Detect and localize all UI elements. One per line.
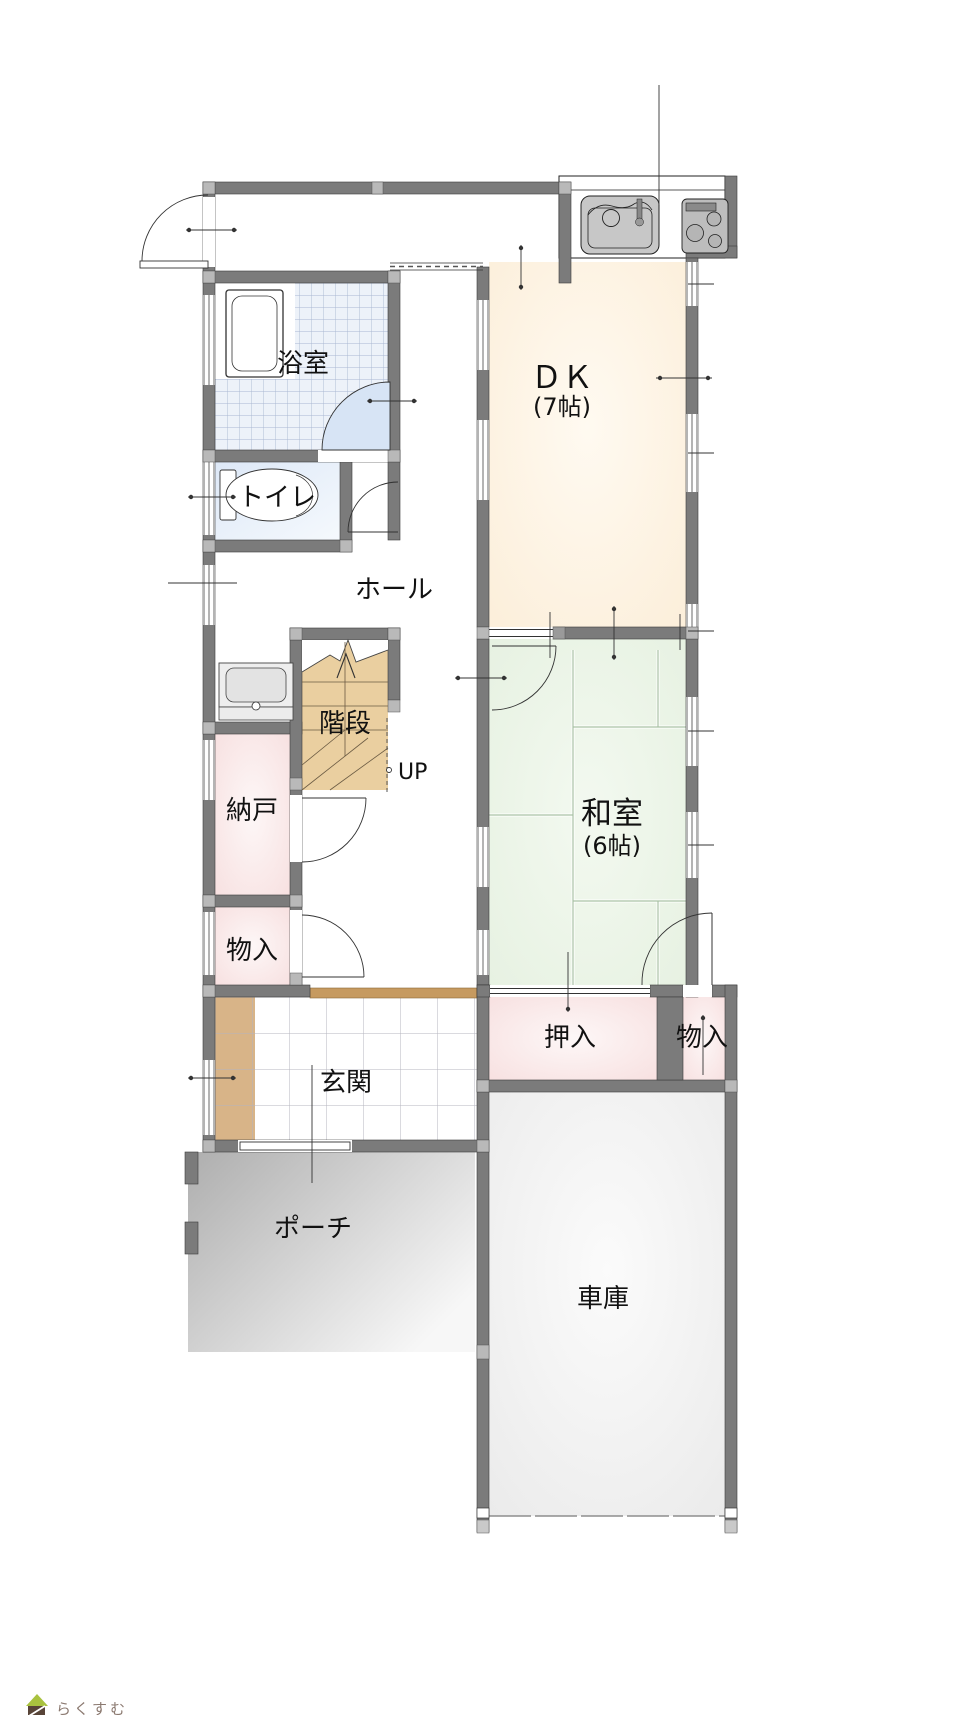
stairs-up-label: UP bbox=[398, 760, 427, 785]
room-label-washitsu: 和室 bbox=[581, 796, 643, 832]
bathtub-icon bbox=[226, 290, 283, 377]
room-label-garage: 車庫 bbox=[577, 1284, 629, 1314]
logo-text: らくすむ bbox=[56, 1700, 128, 1715]
room-label-entrance: 玄関 bbox=[320, 1068, 372, 1098]
room-label-toilet: トイレ bbox=[238, 483, 316, 513]
room-label-futon-closet: 押入 bbox=[544, 1023, 596, 1053]
logo-house-icon bbox=[26, 1694, 48, 1715]
floor-plan-page: 浴室 トイレ ホール 階段 UP 納戸 物入 玄関 ポーチ ＤＫ (7帖) 和室… bbox=[0, 0, 956, 1715]
washbasin-icon bbox=[219, 663, 293, 720]
room-label-garage-closet: 物入 bbox=[676, 1023, 728, 1053]
room-label-hall: ホール bbox=[355, 575, 433, 605]
hall-closet-door-swing bbox=[302, 915, 364, 977]
entrance-step-edge bbox=[310, 988, 477, 998]
room-porch bbox=[188, 1152, 475, 1352]
storage-door-swing bbox=[302, 798, 366, 862]
back-door-swing bbox=[140, 195, 208, 268]
floor-plan: 浴室 トイレ ホール 階段 UP 納戸 物入 玄関 ポーチ ＤＫ (7帖) 和室… bbox=[0, 0, 956, 1715]
rakusumu-logo: らくすむ bbox=[26, 1694, 128, 1715]
room-entrance bbox=[215, 988, 477, 1140]
kitchen-sink-icon bbox=[581, 196, 659, 254]
room-dining-kitchen bbox=[489, 262, 686, 627]
entrance-door bbox=[240, 1142, 350, 1150]
room-size-washitsu: (6帖) bbox=[583, 832, 641, 860]
room-label-stairs: 階段 bbox=[319, 709, 371, 739]
stove-icon bbox=[682, 199, 728, 253]
room-label-storage: 納戸 bbox=[226, 796, 278, 826]
room-label-porch: ポーチ bbox=[274, 1214, 352, 1244]
hanging-wall-dashed bbox=[390, 263, 483, 270]
room-label-bathroom: 浴室 bbox=[277, 349, 329, 379]
room-size-dk: (7帖) bbox=[533, 393, 591, 421]
room-label-dk: ＤＫ bbox=[531, 360, 593, 396]
room-label-hall-closet: 物入 bbox=[226, 936, 278, 966]
